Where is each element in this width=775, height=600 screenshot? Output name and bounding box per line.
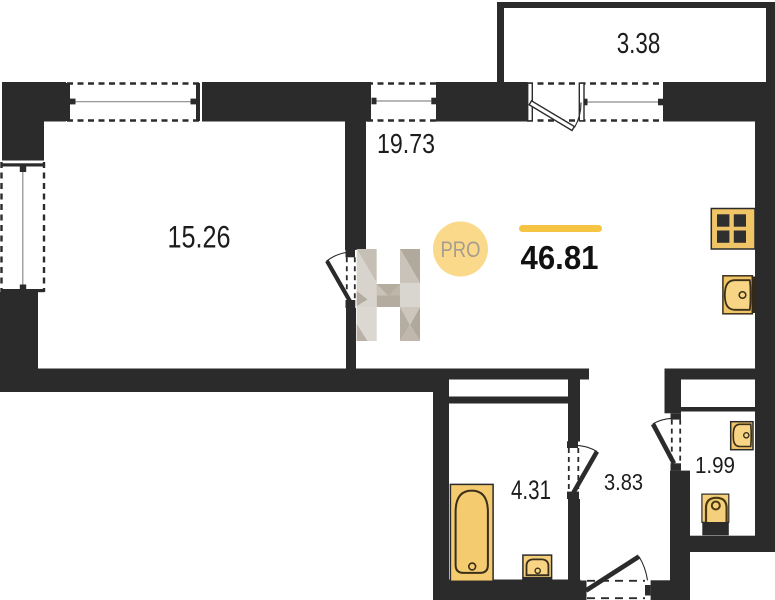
svg-text:1.99: 1.99 [695,452,735,478]
svg-text:19.73: 19.73 [377,128,435,159]
svg-text:PRO: PRO [441,237,481,262]
svg-text:4.31: 4.31 [511,475,551,505]
svg-text:46.81: 46.81 [521,240,599,277]
svg-text:3.83: 3.83 [604,469,643,495]
svg-text:15.26: 15.26 [168,219,231,255]
svg-text:3.38: 3.38 [617,28,661,60]
